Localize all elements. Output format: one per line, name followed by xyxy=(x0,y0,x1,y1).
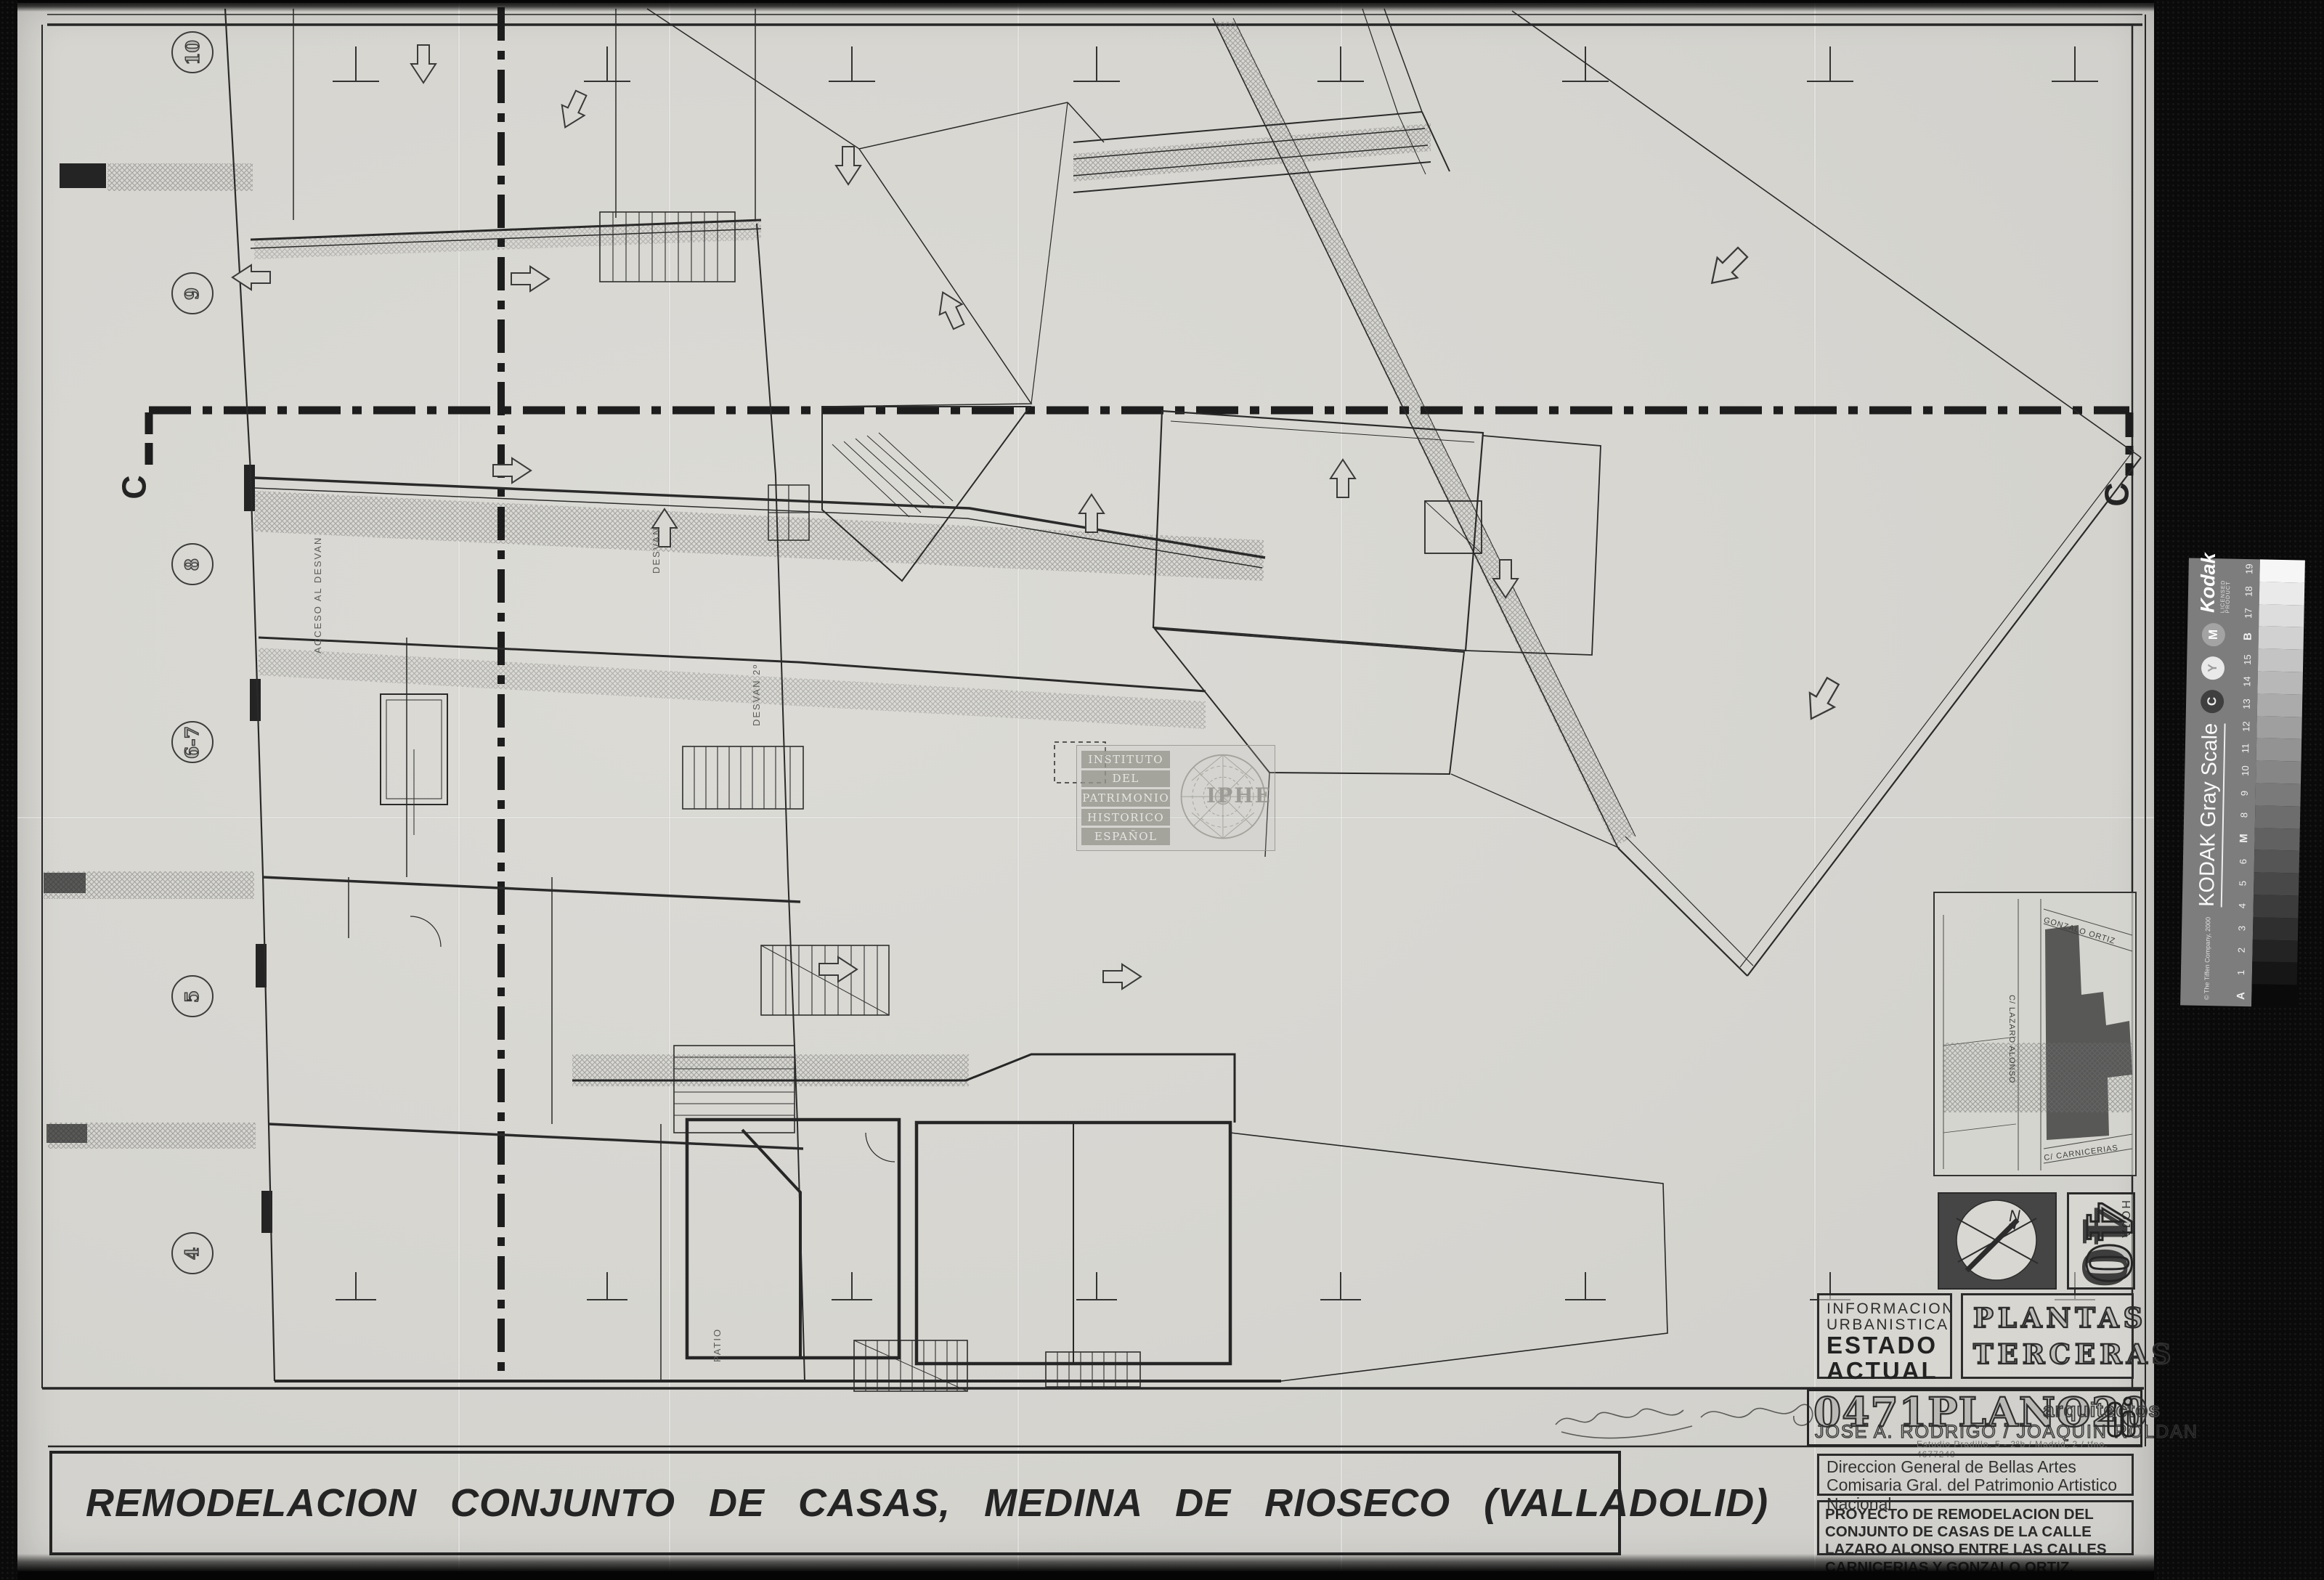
status-line: ACTUAL xyxy=(1827,1359,1943,1384)
kodak-gradient-step xyxy=(2255,783,2301,806)
kodak-scale-label: 3 xyxy=(2237,925,2248,931)
sheet-border xyxy=(42,15,2145,1446)
kodak-scale-label: 17 xyxy=(2243,608,2254,619)
title-block-strip: 0471PLANO20 arquitectos JOSE A. RODRIGO … xyxy=(1807,1389,2142,1446)
wall-stubs xyxy=(44,163,272,1233)
kodak-label-band: © The Tiffen Company, 2000 KODAK Gray Sc… xyxy=(2180,558,2260,1007)
section-marker-c-right: C xyxy=(2100,482,2134,506)
kodak-scale-label: 12 xyxy=(2240,721,2251,732)
kodak-gray-scale: © The Tiffen Company, 2000 KODAK Gray Sc… xyxy=(2180,558,2307,1008)
room-label-acceso: ACCESO AL DESVAN xyxy=(312,537,323,653)
grid-bubble: 10 xyxy=(171,31,214,73)
grid-bubble-label: 10 xyxy=(182,40,203,65)
kodak-gradient-step xyxy=(2252,940,2298,963)
kodak-scale-label: 2 xyxy=(2236,948,2247,953)
kodak-copyright: © The Tiffen Company, 2000 xyxy=(2203,917,2211,1000)
watermark-line: INSTITUTO xyxy=(1081,751,1170,768)
drawing-type-box: PLANTAS TERCERAS xyxy=(1961,1293,2134,1379)
upper-roofs xyxy=(647,9,1450,407)
status-box: INFORMACION URBANISTICA ESTADO ACTUAL xyxy=(1817,1293,1952,1379)
grid-bubble: 8 xyxy=(171,543,214,585)
kodak-gradient-step xyxy=(2259,559,2305,582)
inset-street-left: C/ LAZARO ALONSO xyxy=(2007,995,2016,1083)
kodak-gradient-step xyxy=(2252,962,2298,985)
iphe-watermark-text: INSTITUTO DEL PATRIMONIO HISTORICO ESPAÑ… xyxy=(1077,746,1174,850)
room-label-patio: PATIO xyxy=(712,1328,723,1362)
grid-bubble: 5 xyxy=(171,975,214,1017)
watermark-line: HISTORICO xyxy=(1081,809,1170,826)
grid-bubble: 4 xyxy=(171,1232,214,1274)
kodak-scale-label: 6 xyxy=(2238,858,2248,864)
iphe-acronym: IPHE xyxy=(1206,783,1272,807)
kodak-gradient-step xyxy=(2256,761,2301,784)
kodak-gradient-step xyxy=(2259,582,2305,605)
grid-bubble-label: 6-7 xyxy=(182,725,203,758)
kodak-title: KODAK Gray Scale xyxy=(2195,723,2225,908)
kodak-scale-label: 15 xyxy=(2242,654,2253,665)
kodak-scale-label: A xyxy=(2235,992,2247,1000)
signatures xyxy=(1556,1404,1813,1438)
kodak-licensed-label: LICENSED PRODUCT xyxy=(2219,553,2232,614)
kodak-scale-label: 1 xyxy=(2235,970,2246,976)
kodak-scale-label: 5 xyxy=(2238,881,2248,887)
grid-bubble-label: 4 xyxy=(182,1247,203,1259)
room-label-desvan: DESVAN xyxy=(651,527,662,574)
drawing-type-line: TERCERAS xyxy=(1973,1338,2132,1370)
kodak-gradient-step xyxy=(2259,627,2304,650)
authority-box: Direccion General de Bellas Artes Comisa… xyxy=(1817,1454,2134,1496)
kodak-logo: Kodak xyxy=(2198,553,2219,613)
watermark-line: PATRIMONIO xyxy=(1081,789,1170,807)
yellow-patch-icon: Y xyxy=(2201,656,2225,680)
kodak-gradient-step xyxy=(2253,917,2299,940)
profession-label: arquitectos xyxy=(2043,1398,2161,1422)
kodak-gradient-step xyxy=(2257,693,2303,717)
kodak-gradient-step xyxy=(2254,828,2300,851)
main-title-box: REMODELACION CONJUNTO DE CASAS, MEDINA D… xyxy=(49,1451,1621,1555)
kodak-scale-label: 14 xyxy=(2241,677,2252,688)
status-line: INFORMACION xyxy=(1827,1301,1943,1317)
status-line: ESTADO xyxy=(1827,1333,1943,1359)
kodak-gradient-step xyxy=(2255,805,2301,828)
location-inset-map: GONZALO ORTIZ C/ LAZARO ALONSO C/ CARNIC… xyxy=(1933,892,2137,1176)
stairs xyxy=(600,212,1140,1391)
kodak-scale-label: 18 xyxy=(2243,586,2254,597)
drawing-type-line: PLANTAS xyxy=(1973,1302,2132,1334)
kodak-gradient-step xyxy=(2254,850,2300,874)
compass-north-label: N xyxy=(2009,1207,2020,1226)
kodak-brand: Kodak LICENSED PRODUCT xyxy=(2198,553,2232,613)
kodak-gradient-step xyxy=(2259,604,2304,627)
page-title: REMODELACION CONJUNTO DE CASAS, MEDINA D… xyxy=(52,1481,1768,1526)
watermark-line: DEL xyxy=(1081,770,1170,788)
kodak-gradient-steps xyxy=(2251,559,2305,1007)
kodak-gradient-step xyxy=(2256,738,2302,762)
compass-icon xyxy=(1939,1194,2055,1287)
kodak-gradient-step xyxy=(2258,649,2304,672)
grid-bubble: 6-7 xyxy=(171,721,214,763)
kodak-gradient-step xyxy=(2251,984,2297,1007)
architects-logo xyxy=(2104,1396,2139,1441)
kodak-gradient-step xyxy=(2257,671,2303,694)
cyan-patch-icon: C xyxy=(2201,690,2225,714)
kodak-gradient-step xyxy=(2253,895,2299,918)
kodak-scale-label: B xyxy=(2241,632,2254,640)
status-line: URBANISTICA xyxy=(1827,1317,1943,1333)
kodak-gradient-step xyxy=(2254,872,2299,895)
kodak-gradient-step xyxy=(2256,716,2302,739)
scan-edge-bottom xyxy=(17,1554,2154,1580)
project-description-box: PROYECTO DE REMODELACION DEL CONJUNTO DE… xyxy=(1817,1500,2134,1555)
compass-box: N xyxy=(1938,1192,2057,1290)
watermark-line: ESPAÑOL xyxy=(1081,828,1170,845)
kodak-scale-label: 4 xyxy=(2237,903,2248,909)
section-line-cc xyxy=(149,410,2129,476)
bottom-rooms xyxy=(275,1054,1667,1381)
kodak-scale-label: 13 xyxy=(2240,699,2251,709)
hoja-number: 40 xyxy=(2073,1201,2142,1284)
sheet-number-box: HOJA 40 xyxy=(2067,1192,2135,1290)
grid-bubble-label: 9 xyxy=(182,287,203,299)
kodak-scale-label: 9 xyxy=(2239,790,2250,796)
grid-bubble: 9 xyxy=(171,272,214,314)
scan-edge-top xyxy=(17,0,2154,12)
kodak-scale-label: 19 xyxy=(2243,563,2254,574)
section-marker-c-left: C xyxy=(118,475,151,499)
magenta-patch-icon: M xyxy=(2202,623,2226,647)
kodak-scale-label: 10 xyxy=(2240,765,2251,776)
kodak-scale-label: 11 xyxy=(2240,744,2251,754)
kodak-scale-label: 8 xyxy=(2239,813,2250,818)
iphe-watermark: INSTITUTO DEL PATRIMONIO HISTORICO ESPAÑ… xyxy=(1076,745,1275,851)
room-label-desvan2: DESVAN 2º xyxy=(751,664,762,726)
grid-bubble-label: 8 xyxy=(182,558,203,570)
kodak-scale-label: M xyxy=(2238,834,2250,843)
authority-line: Direccion General de Bellas Artes xyxy=(1827,1458,2124,1476)
grid-bubble-label: 5 xyxy=(182,990,203,1002)
